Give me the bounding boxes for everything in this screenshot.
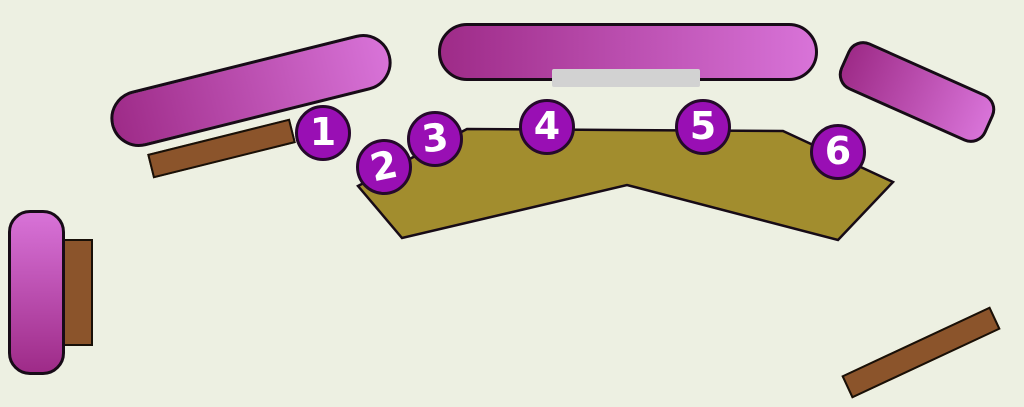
marker-2[interactable]: 2 bbox=[356, 139, 412, 195]
marker-5[interactable]: 5 bbox=[675, 99, 731, 155]
marker-1[interactable]: 1 bbox=[295, 105, 351, 161]
marker-4-label: 4 bbox=[534, 107, 560, 148]
diagram-canvas: 1 2 3 4 5 6 bbox=[0, 0, 1024, 407]
marker-4[interactable]: 4 bbox=[519, 99, 575, 155]
marker-3[interactable]: 3 bbox=[407, 111, 463, 167]
gray-strip bbox=[552, 69, 700, 87]
olive-polygon-layer bbox=[0, 0, 1024, 407]
marker-6[interactable]: 6 bbox=[810, 124, 866, 180]
marker-2-label: 2 bbox=[367, 144, 401, 190]
marker-3-label: 3 bbox=[420, 117, 451, 161]
marker-1-label: 1 bbox=[310, 113, 336, 154]
marker-5-label: 5 bbox=[690, 107, 716, 148]
marker-6-label: 6 bbox=[825, 132, 851, 173]
